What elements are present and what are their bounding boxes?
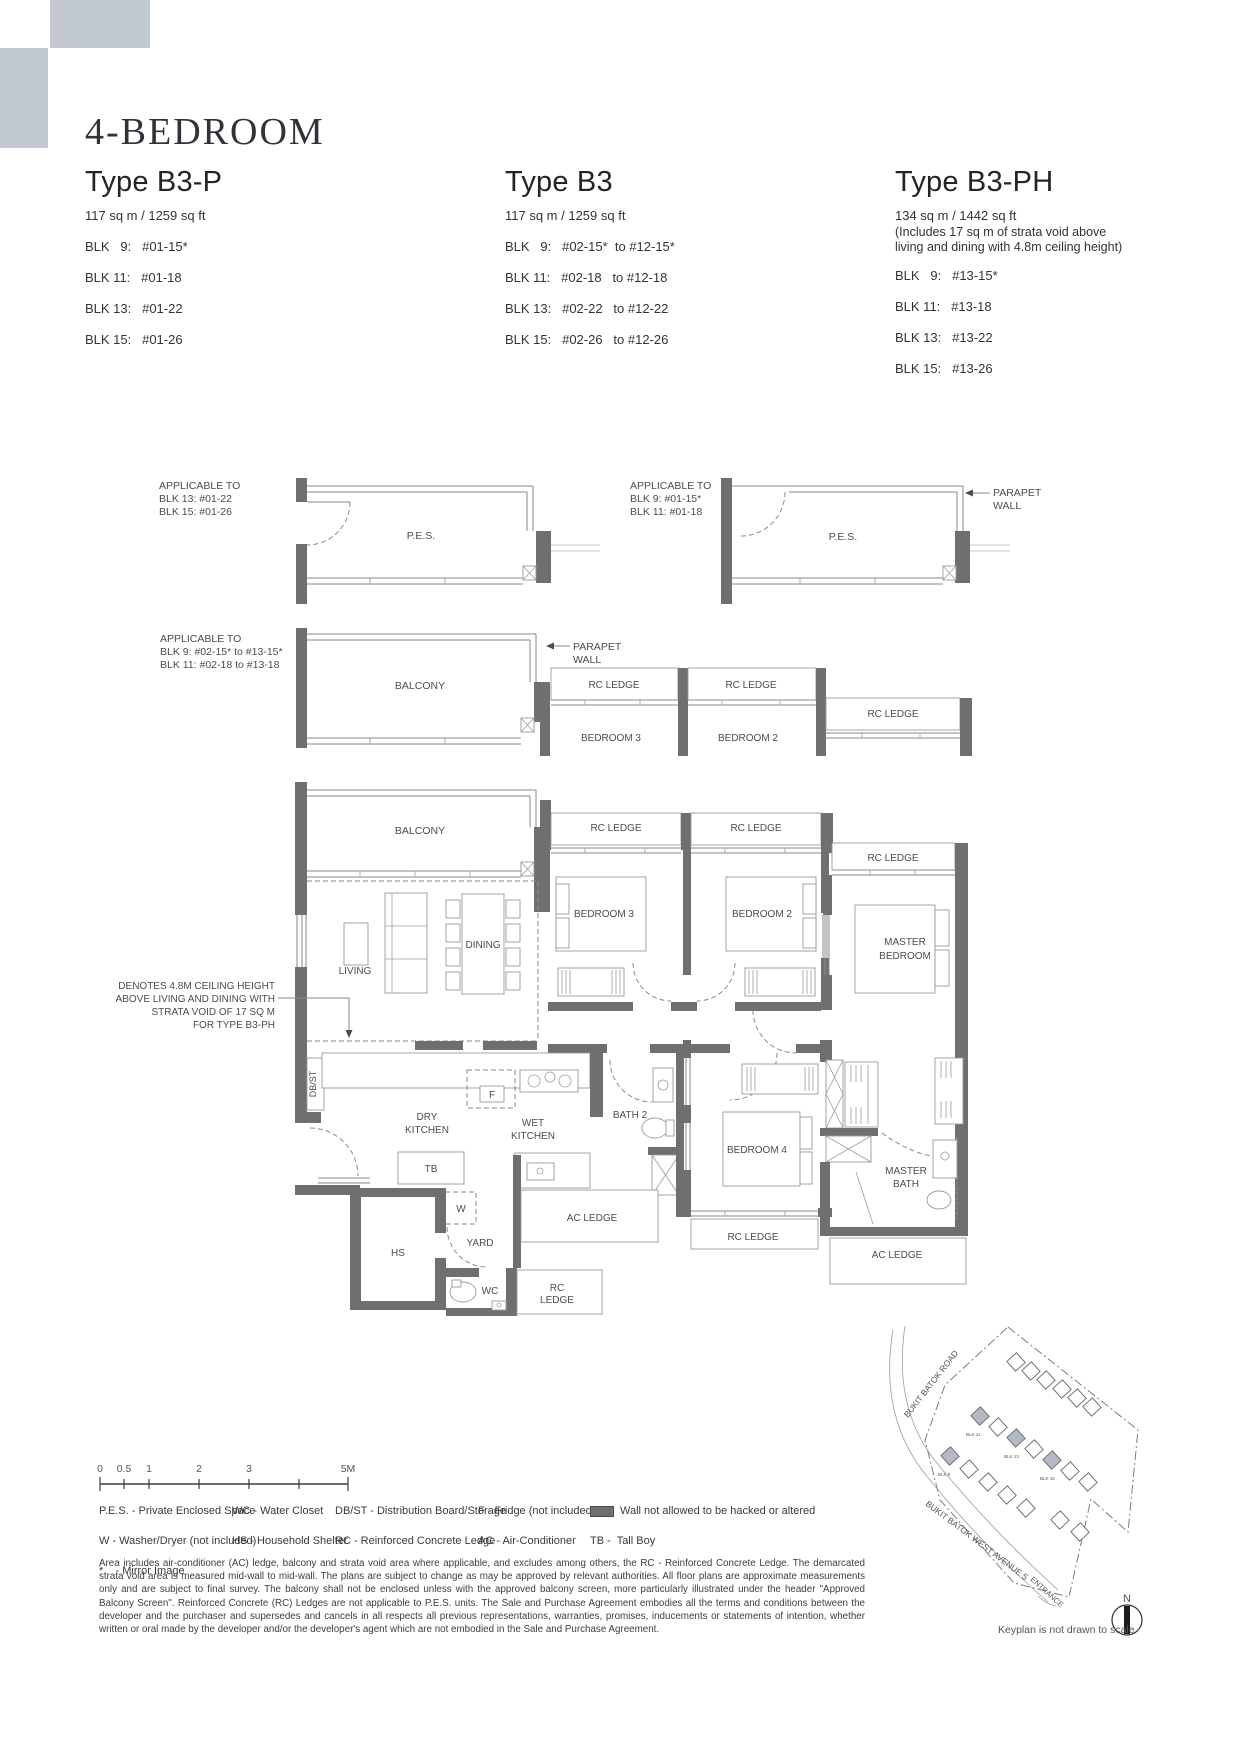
balcony-label: BALCONY [395, 680, 445, 692]
annotation-line: DENOTES 4.8M CEILING HEIGHT [118, 981, 275, 992]
applicable-note: BLK 9: #02-15* to #13-15* [160, 646, 283, 658]
dining-label: DINING [466, 940, 501, 951]
legend-col4: F - Fridge (not included) AC - Air-Condi… [478, 1504, 595, 1549]
legend-item: TB - Tall Boy [590, 1535, 655, 1547]
applicable-note: BLK 11: #01-18 [630, 506, 702, 518]
rc-ledge-label-2: LEDGE [540, 1295, 574, 1306]
bedroom4-label: BEDROOM 4 [727, 1145, 787, 1156]
living-label: LIVING [339, 966, 372, 977]
ac-ledge-bottom: AC LEDGE [830, 1238, 966, 1284]
floorplan-drawing: APPLICABLE TO BLK 13: #01-22 BLK 15: #01… [0, 0, 1241, 1754]
vanity [933, 1140, 957, 1178]
door-swing-arc [753, 1010, 796, 1053]
fridge-label: F [489, 1090, 495, 1101]
rc-ledge-label: RC LEDGE [867, 709, 918, 720]
applicable-note: APPLICABLE TO [630, 480, 711, 492]
applicable-note: APPLICABLE TO [160, 633, 241, 645]
door-swing-arc [610, 1060, 652, 1102]
wardrobe [935, 1058, 963, 1124]
blk-label: BLK 15 [1040, 1476, 1055, 1481]
legend-wall-note: Wall not allowed to be hacked or altered [620, 1505, 815, 1517]
hs-label: HS [391, 1248, 405, 1259]
shower [652, 1155, 679, 1195]
door-swing-arc [697, 963, 735, 1001]
pes-diagram-left: APPLICABLE TO BLK 13: #01-22 BLK 15: #01… [159, 478, 600, 604]
applicable-note: BLK 9: #01-15* [630, 493, 701, 505]
keyplan-note: Keyplan is not drawn to scale [998, 1624, 1135, 1636]
master-bedroom-label-1: MASTER [884, 937, 926, 948]
rc-ledge-label: RC LEDGE [730, 823, 781, 834]
dry-kitchen-label-1: DRY [417, 1112, 438, 1123]
wet-kitchen-label-1: WET [522, 1118, 544, 1129]
legend-item: RC - Reinforced Concrete Ledge [335, 1535, 495, 1547]
scale-tick: 1 [146, 1463, 152, 1475]
rc-ledge-label: RC LEDGE [725, 680, 776, 691]
north-label: N [1123, 1593, 1131, 1605]
road-label-bukit-batok-road: BUKIT BATOK ROAD [902, 1348, 960, 1419]
annotation-line: FOR TYPE B3-PH [193, 1020, 275, 1031]
bedroom3-label: BEDROOM 3 [574, 909, 634, 920]
road-label-bukit-batok-west-ave5: BUKIT BATOK WEST AVENUE 5 [924, 1499, 1030, 1583]
living-furniture [344, 893, 427, 993]
disclaimer-text: Area includes air-conditioner (AC) ledge… [99, 1557, 865, 1636]
legend-col5: Wall not allowed to be hacked or altered… [590, 1504, 815, 1549]
rc-ledge-label: RC LEDGE [590, 823, 641, 834]
pes-label: P.E.S. [829, 531, 857, 543]
highlighted-block [1043, 1451, 1061, 1469]
legend-col2: WC - Water Closet HS - Household Shelter [232, 1504, 348, 1549]
parapet-label: PARAPET [573, 641, 622, 653]
bath2-label: BATH 2 [613, 1110, 648, 1121]
dry-kitchen-label-2: KITCHEN [405, 1125, 449, 1136]
keyplan: BLK 11 BLK 13 BLK 15 BLK 9 BUKIT BATOK R… [890, 1326, 1142, 1636]
blk-label: BLK 13 [1004, 1454, 1019, 1459]
door-swing-arc [633, 963, 671, 1001]
legend-item: F - Fridge (not included) [478, 1505, 595, 1517]
main-floorplan: BALCONY LIVING DINING DENOTES 4.8M CEILI… [116, 782, 968, 1316]
highlighted-block [971, 1407, 989, 1425]
fixture-box [943, 566, 956, 580]
parapet-wall-callout: PARAPET WALL [546, 641, 622, 666]
master-bath-label-1: MASTER [885, 1166, 927, 1177]
rc-ledge-label: RC LEDGE [867, 853, 918, 864]
rc-ledge-label: RC LEDGE [727, 1232, 778, 1243]
ac-ledge-center: AC LEDGE [521, 1190, 658, 1242]
rc-ledge-wc: RC LEDGE [517, 1270, 602, 1314]
wardrobe [826, 1060, 843, 1128]
toilet [927, 1191, 951, 1209]
annotation-line: STRATA VOID OF 17 SQ M [151, 1007, 275, 1018]
highlighted-block [941, 1447, 959, 1465]
bedroom3-label: BEDROOM 3 [581, 733, 641, 744]
scale-tick: 2 [196, 1463, 202, 1475]
scale-bar: 0 0.5 1 2 3 5M [97, 1463, 355, 1491]
rc-ledge-bedroom4: RC LEDGE [691, 1219, 818, 1249]
rc-ledge-label-1: RC [550, 1283, 564, 1294]
applicable-note: BLK 15: #01-26 [159, 506, 232, 518]
bedroom2-label: BEDROOM 2 [732, 909, 792, 920]
fixture-box [523, 566, 536, 580]
legend-item: AC - Air-Conditioner [478, 1535, 576, 1547]
wet-kitchen-label-2: KITCHEN [511, 1131, 555, 1142]
balcony-label: BALCONY [395, 825, 445, 837]
door-swing-arc [307, 502, 350, 545]
pes-diagram-right: APPLICABLE TO BLK 9: #01-15* BLK 11: #01… [630, 478, 1042, 604]
bedroom2: BEDROOM 2 [697, 877, 816, 1001]
door-swing-arc [882, 1133, 930, 1156]
rc-ledge-label: RC LEDGE [588, 680, 639, 691]
blk-label: BLK 11 [966, 1432, 981, 1437]
ac-ledge-label: AC LEDGE [872, 1250, 923, 1261]
ac-ledge-label: AC LEDGE [567, 1213, 618, 1224]
applicable-note: BLK 11: #02-18 to #13-18 [160, 659, 280, 671]
dbst-label: DB/ST [308, 1070, 318, 1097]
master-bath-label-2: BATH [893, 1179, 919, 1190]
entry-door-arc [310, 1128, 358, 1176]
door-swing-arc [741, 492, 785, 536]
master-bedroom-label-2: BEDROOM [879, 951, 931, 962]
scale-tick: 0.5 [117, 1463, 132, 1475]
scale-tick: 3 [246, 1463, 252, 1475]
bedroom4: BEDROOM 4 [683, 1040, 832, 1217]
wc-label: WC [482, 1286, 499, 1297]
blk-label: BLK 9 [938, 1472, 951, 1477]
bedroom3: BEDROOM 3 [556, 877, 671, 1001]
legend: P.E.S. - Private Enclosed Space W - Wash… [99, 1504, 899, 1564]
washer-label: W [456, 1204, 466, 1215]
kitchen: F DRY KITCHEN WET KITCHEN TB [322, 1053, 590, 1188]
fixture-box [521, 718, 534, 732]
strata-void-annotation: DENOTES 4.8M CEILING HEIGHT ABOVE LIVING… [116, 981, 353, 1038]
bath2: BATH 2 [610, 1060, 674, 1138]
master-bedroom: MASTER BEDROOM [823, 875, 949, 1010]
parapet-label: PARAPET [993, 487, 1042, 499]
annotation-line: ABOVE LIVING AND DINING WITH [116, 994, 275, 1005]
stove [520, 1070, 578, 1092]
parapet-label: WALL [573, 654, 601, 666]
applicable-note: APPLICABLE TO [159, 480, 240, 492]
wardrobe [845, 1062, 878, 1127]
shower [826, 1136, 871, 1162]
household-shelter: HS [350, 1188, 446, 1310]
legend-item: WC - Water Closet [232, 1505, 323, 1517]
highlighted-block [1007, 1429, 1025, 1447]
bedroom2-label: BEDROOM 2 [718, 733, 778, 744]
applicable-note: BLK 13: #01-22 [159, 493, 232, 505]
fixture-box [521, 862, 534, 876]
floorplan-brochure-page: { "header": { "title": "4-BEDROOM", "typ… [0, 0, 1241, 1754]
parapet-label: WALL [993, 500, 1021, 512]
tb-label: TB [425, 1164, 438, 1175]
yard-label: YARD [466, 1238, 493, 1249]
scale-tick: 0 [97, 1463, 103, 1475]
legend-item: HS - Household Shelter [232, 1535, 348, 1547]
wall-swatch-icon [590, 1506, 614, 1517]
parapet-wall-callout: PARAPET WALL [965, 487, 1042, 512]
yard-area: W YARD [445, 1192, 494, 1267]
master-bath: MASTER BATH [820, 1040, 963, 1235]
wc: WC [446, 1268, 517, 1316]
scale-tick: 5M [341, 1463, 356, 1475]
building-cluster-row1 [1007, 1353, 1101, 1416]
balcony-variant-diagram: APPLICABLE TO BLK 9: #02-15* to #13-15* … [160, 628, 972, 756]
pes-label: P.E.S. [407, 530, 435, 542]
